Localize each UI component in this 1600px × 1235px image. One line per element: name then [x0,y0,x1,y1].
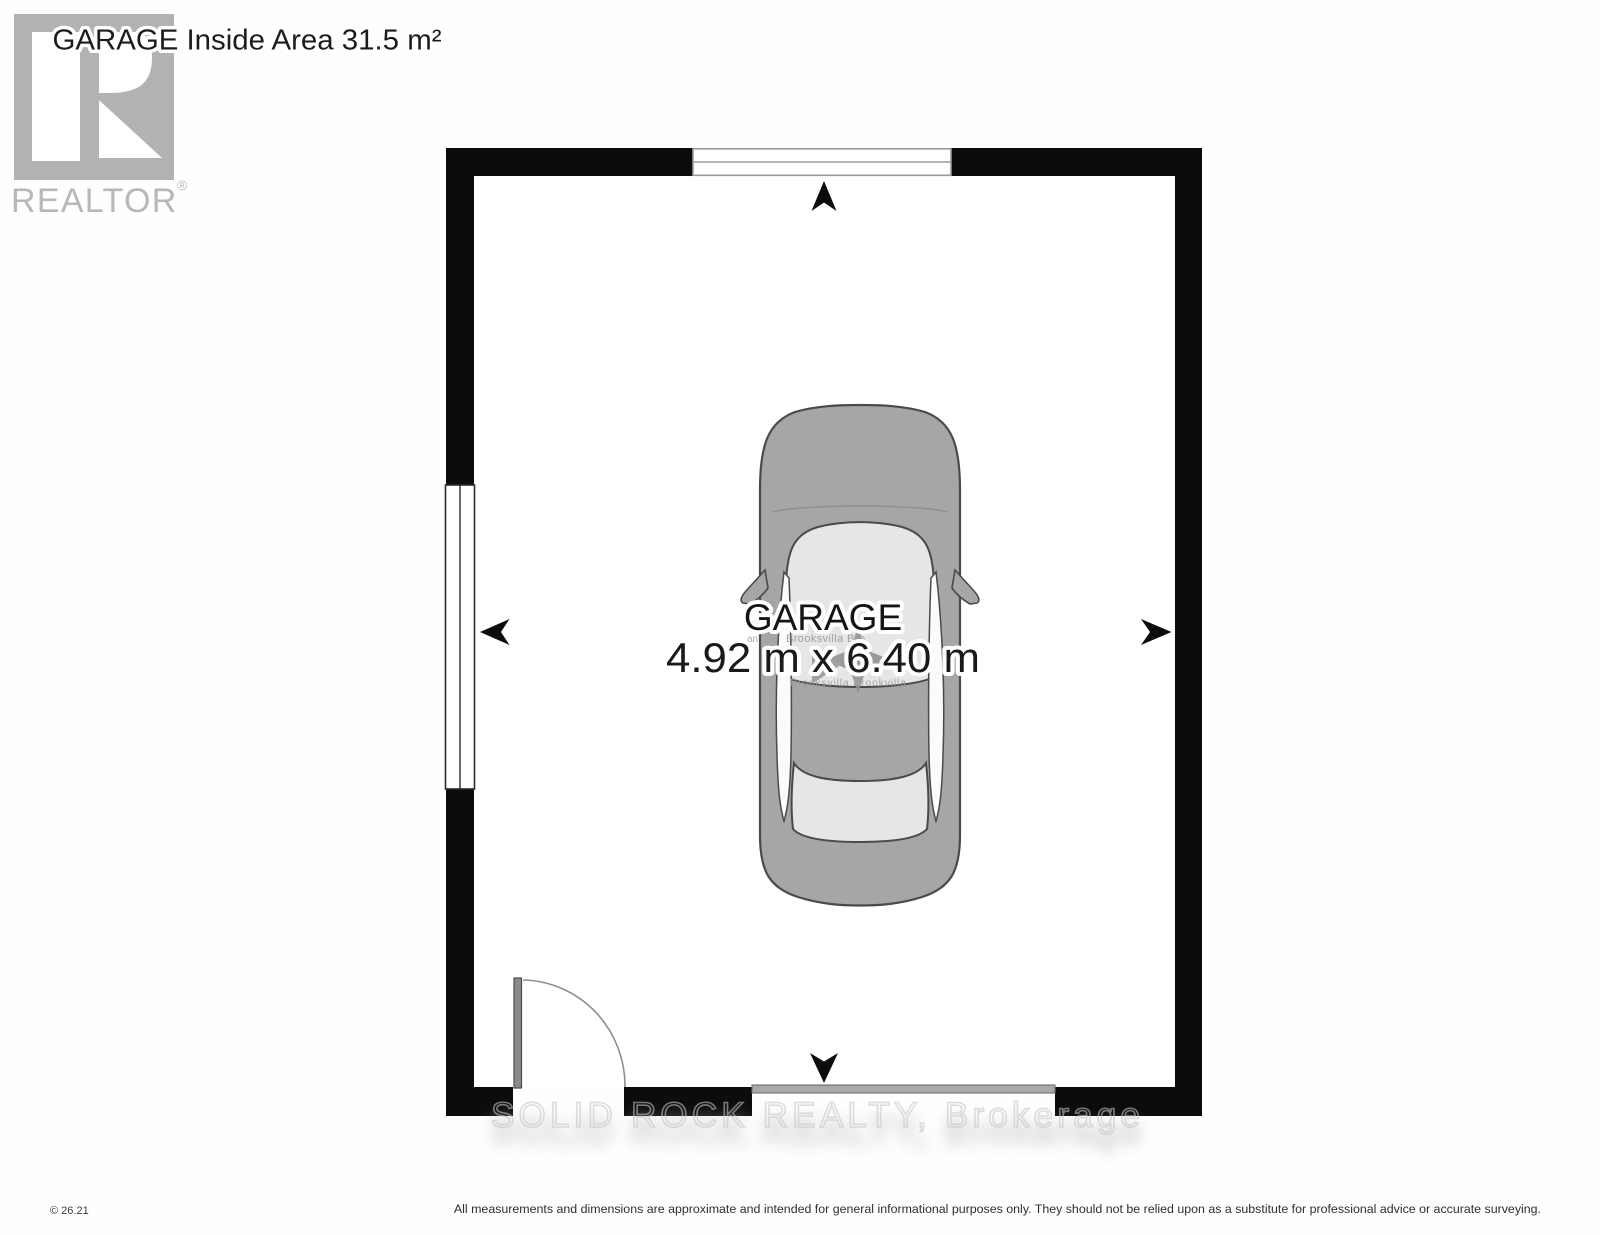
svg-text:REALTOR: REALTOR [11,182,178,220]
svg-text:®: ® [177,177,188,193]
svg-text:GARAGE: GARAGE [744,597,902,638]
svg-text:4.92 m x 6.40 m: 4.92 m x 6.40 m [666,634,980,681]
svg-text:GARAGE Inside Area 31.5 m²: GARAGE Inside Area 31.5 m² [53,25,442,57]
svg-text:SOLID ROCK REALTY, Brokerage: SOLID ROCK REALTY, Brokerage [491,1096,1144,1135]
svg-text:© 26.21: © 26.21 [50,1205,89,1217]
svg-text:All measurements and dimension: All measurements and dimensions are appr… [454,1202,1541,1216]
